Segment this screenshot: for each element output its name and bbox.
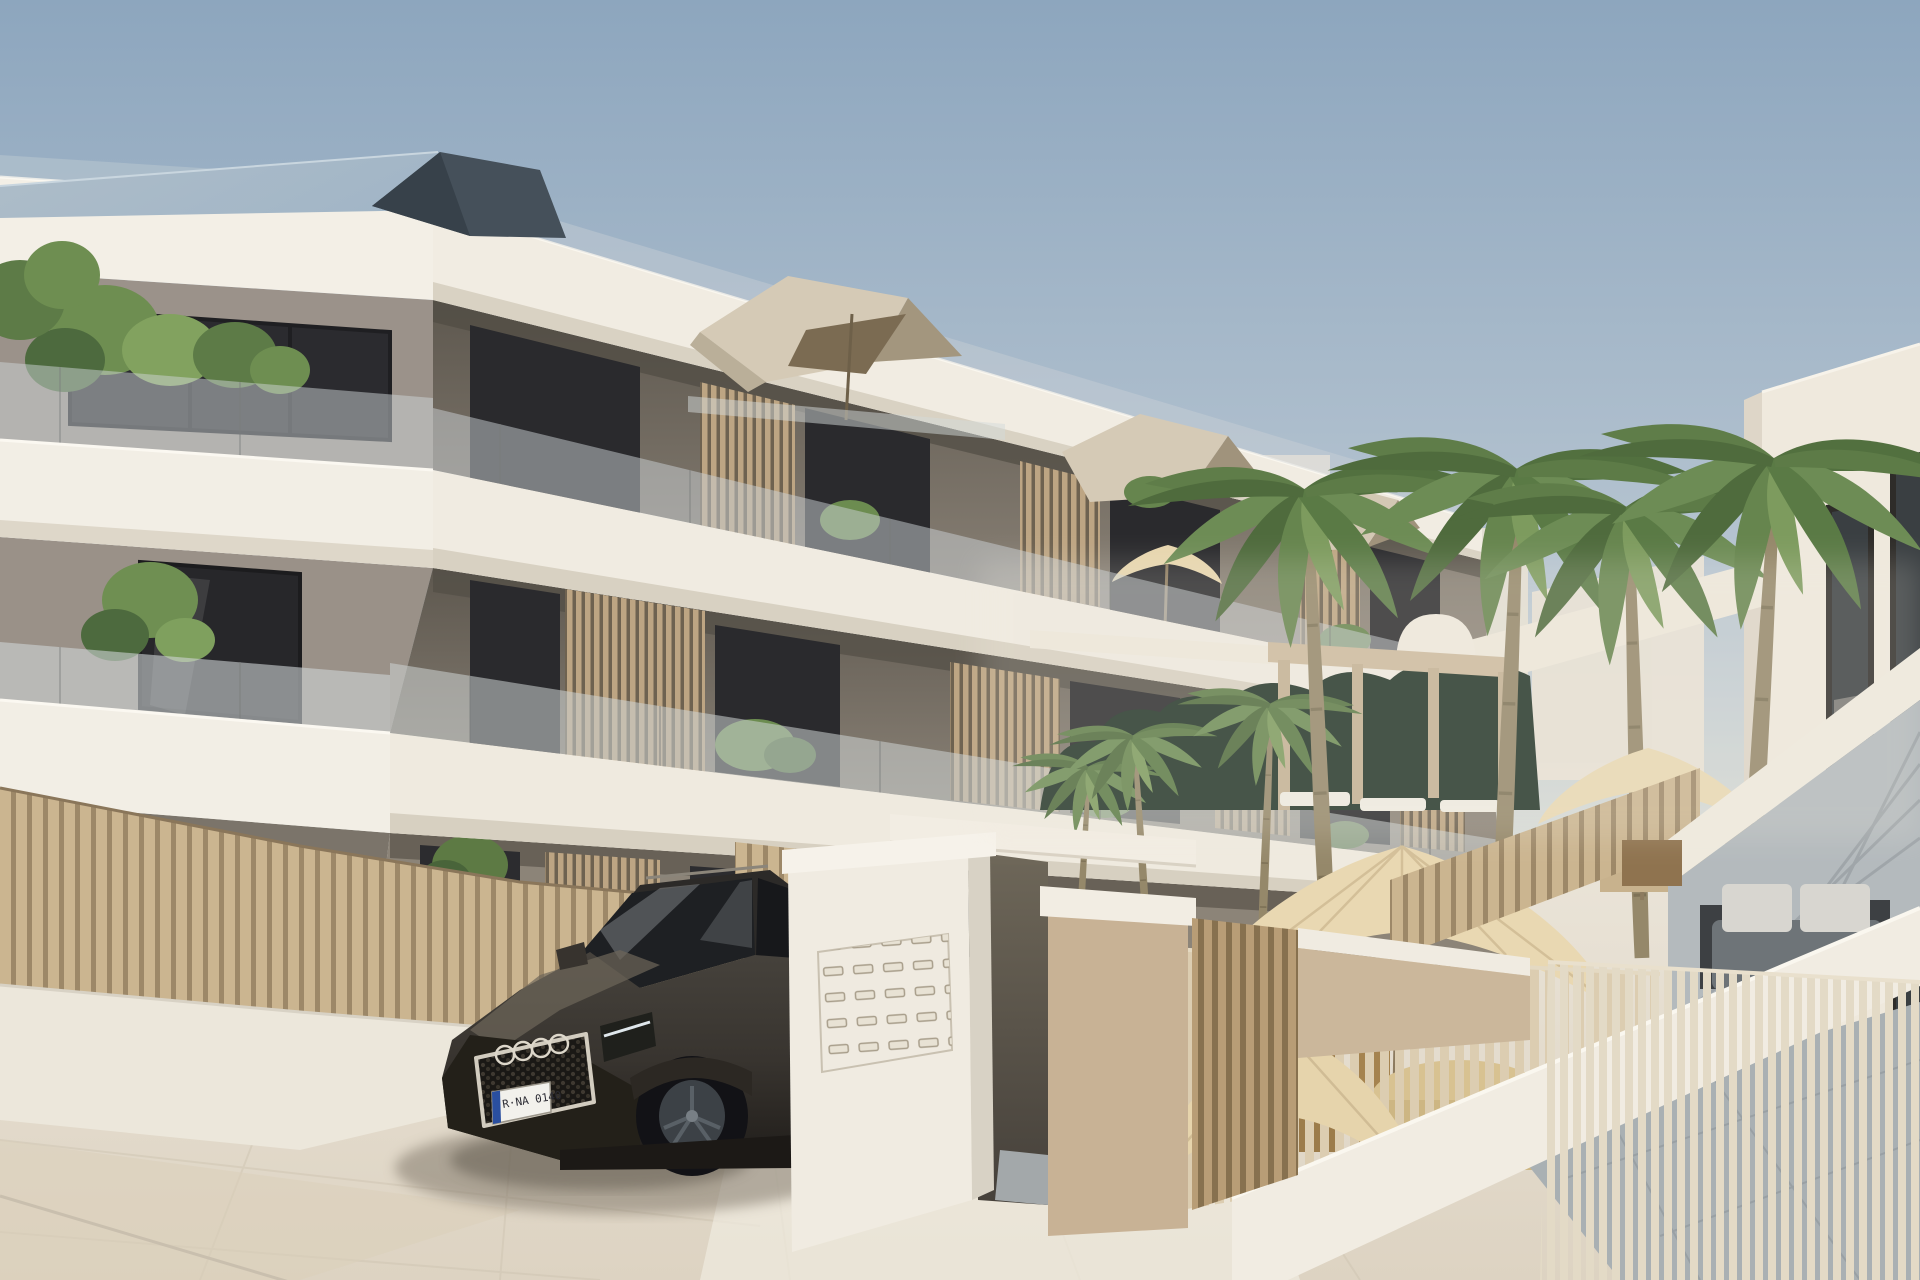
- atmospheric-haze: [980, 560, 1920, 840]
- architectural-render: R·NA 0140: [0, 0, 1920, 1280]
- render-canvas: R·NA 0140: [0, 0, 1920, 1280]
- sofa-slat-fence: [1540, 962, 1920, 1280]
- gate-slat-door: [1192, 918, 1298, 1210]
- gate-pillar-tan: [1040, 886, 1196, 1236]
- rooftop-plant: [24, 241, 100, 309]
- mailbox-pillar: [782, 832, 996, 1252]
- opening-paving: [995, 1150, 1048, 1205]
- mailbox-slots: [818, 934, 952, 1072]
